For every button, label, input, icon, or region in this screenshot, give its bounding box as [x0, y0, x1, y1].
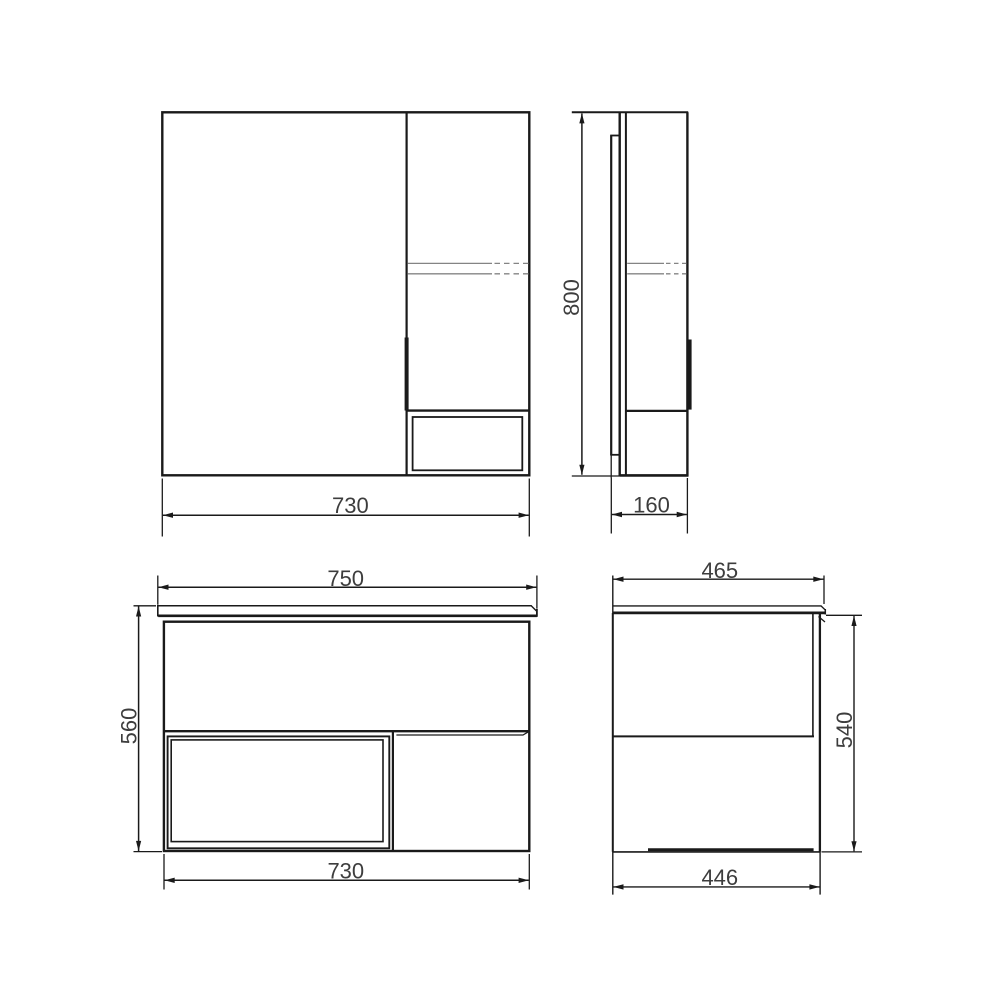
svg-text:750: 750 — [327, 566, 364, 591]
svg-text:160: 160 — [633, 493, 670, 518]
svg-text:446: 446 — [701, 865, 738, 890]
svg-text:540: 540 — [832, 712, 857, 749]
svg-text:730: 730 — [332, 493, 369, 518]
svg-text:560: 560 — [117, 708, 142, 745]
svg-text:800: 800 — [559, 279, 584, 316]
svg-text:465: 465 — [701, 558, 738, 583]
svg-text:730: 730 — [327, 858, 364, 883]
